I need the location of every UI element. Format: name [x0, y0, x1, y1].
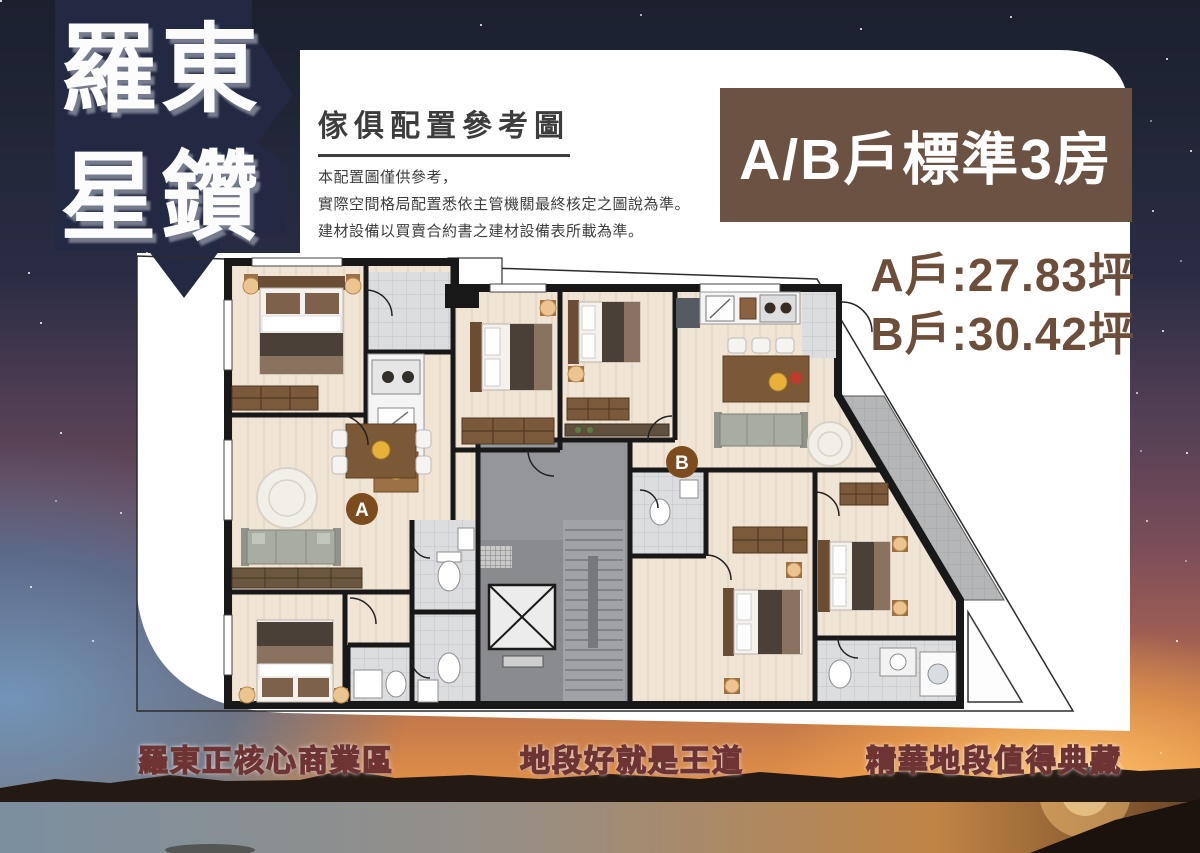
- slogan-right: 精華地段值得典藏: [866, 736, 1122, 780]
- slogan-left: 羅東正核心商業區: [138, 736, 394, 780]
- unit-type-banner: A/B戶標準3房: [720, 88, 1132, 222]
- flyer-page: A B 羅東 星鑽 傢俱配置參考圖 本配置圖僅供參考， 實際空間格局配置悉依主管…: [0, 0, 1200, 853]
- disclaimer-line-3: 建材設備以買賣合約書之建材設備表所載為準。: [318, 218, 690, 245]
- logo-line-1: 羅東: [60, 22, 270, 119]
- unit-type-banner-label: A/B戶標準3房: [739, 114, 1113, 196]
- unit-b-area: B戶:30.42坪: [760, 305, 1135, 364]
- unit-areas: A戶:27.83坪 B戶:30.42坪: [760, 246, 1135, 364]
- diagram-header: 傢俱配置參考圖 本配置圖僅供參考， 實際空間格局配置悉依主管機關最終核定之圖說為…: [318, 101, 690, 245]
- slogan-center: 地段好就是王道: [520, 736, 744, 780]
- disclaimer-line-2: 實際空間格局配置悉依主管機關最終核定之圖說為準。: [318, 191, 690, 218]
- diagram-title: 傢俱配置參考圖: [318, 101, 570, 157]
- unit-a-area: A戶:27.83坪: [760, 246, 1135, 305]
- sea: [0, 794, 1200, 853]
- disclaimer-line-1: 本配置圖僅供參考，: [318, 164, 690, 191]
- logo-line-2: 星鑽: [60, 150, 270, 247]
